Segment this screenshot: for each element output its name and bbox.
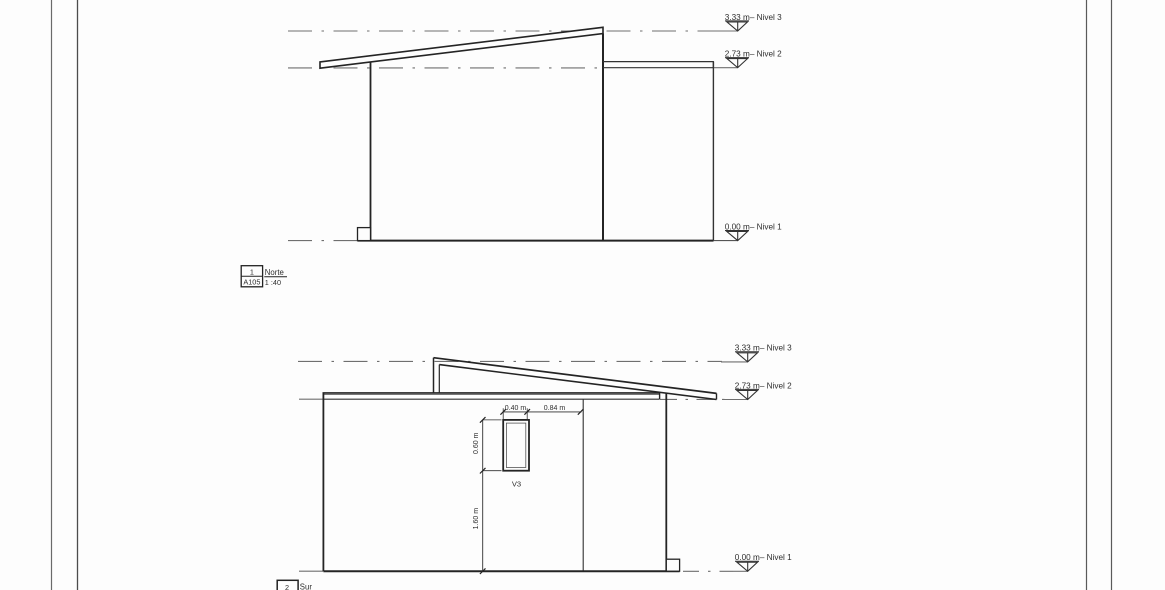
svg-text:1 :40: 1 :40 [265, 278, 281, 287]
svg-text:0.40 m: 0.40 m [505, 405, 527, 412]
svg-text:Sur: Sur [300, 583, 313, 590]
svg-text:2.73 m– Nivel 2: 2.73 m– Nivel 2 [725, 50, 782, 59]
svg-text:0.84 m: 0.84 m [544, 405, 566, 412]
svg-text:0.00 m– Nivel 1: 0.00 m– Nivel 1 [735, 553, 792, 562]
svg-text:1: 1 [250, 268, 254, 277]
svg-text:A105: A105 [243, 278, 260, 287]
svg-text:2: 2 [285, 583, 289, 590]
svg-text:2.73 m– Nivel 2: 2.73 m– Nivel 2 [735, 381, 792, 390]
svg-text:3.33 m– Nivel 3: 3.33 m– Nivel 3 [735, 344, 792, 353]
svg-text:0.00 m– Nivel 1: 0.00 m– Nivel 1 [725, 222, 782, 231]
svg-text:Norte: Norte [265, 268, 284, 277]
svg-text:1.60 m: 1.60 m [473, 508, 480, 530]
svg-text:V3: V3 [512, 479, 521, 488]
svg-text:0.60 m: 0.60 m [473, 432, 480, 454]
svg-text:3.33 m– Nivel 3: 3.33 m– Nivel 3 [725, 13, 782, 22]
